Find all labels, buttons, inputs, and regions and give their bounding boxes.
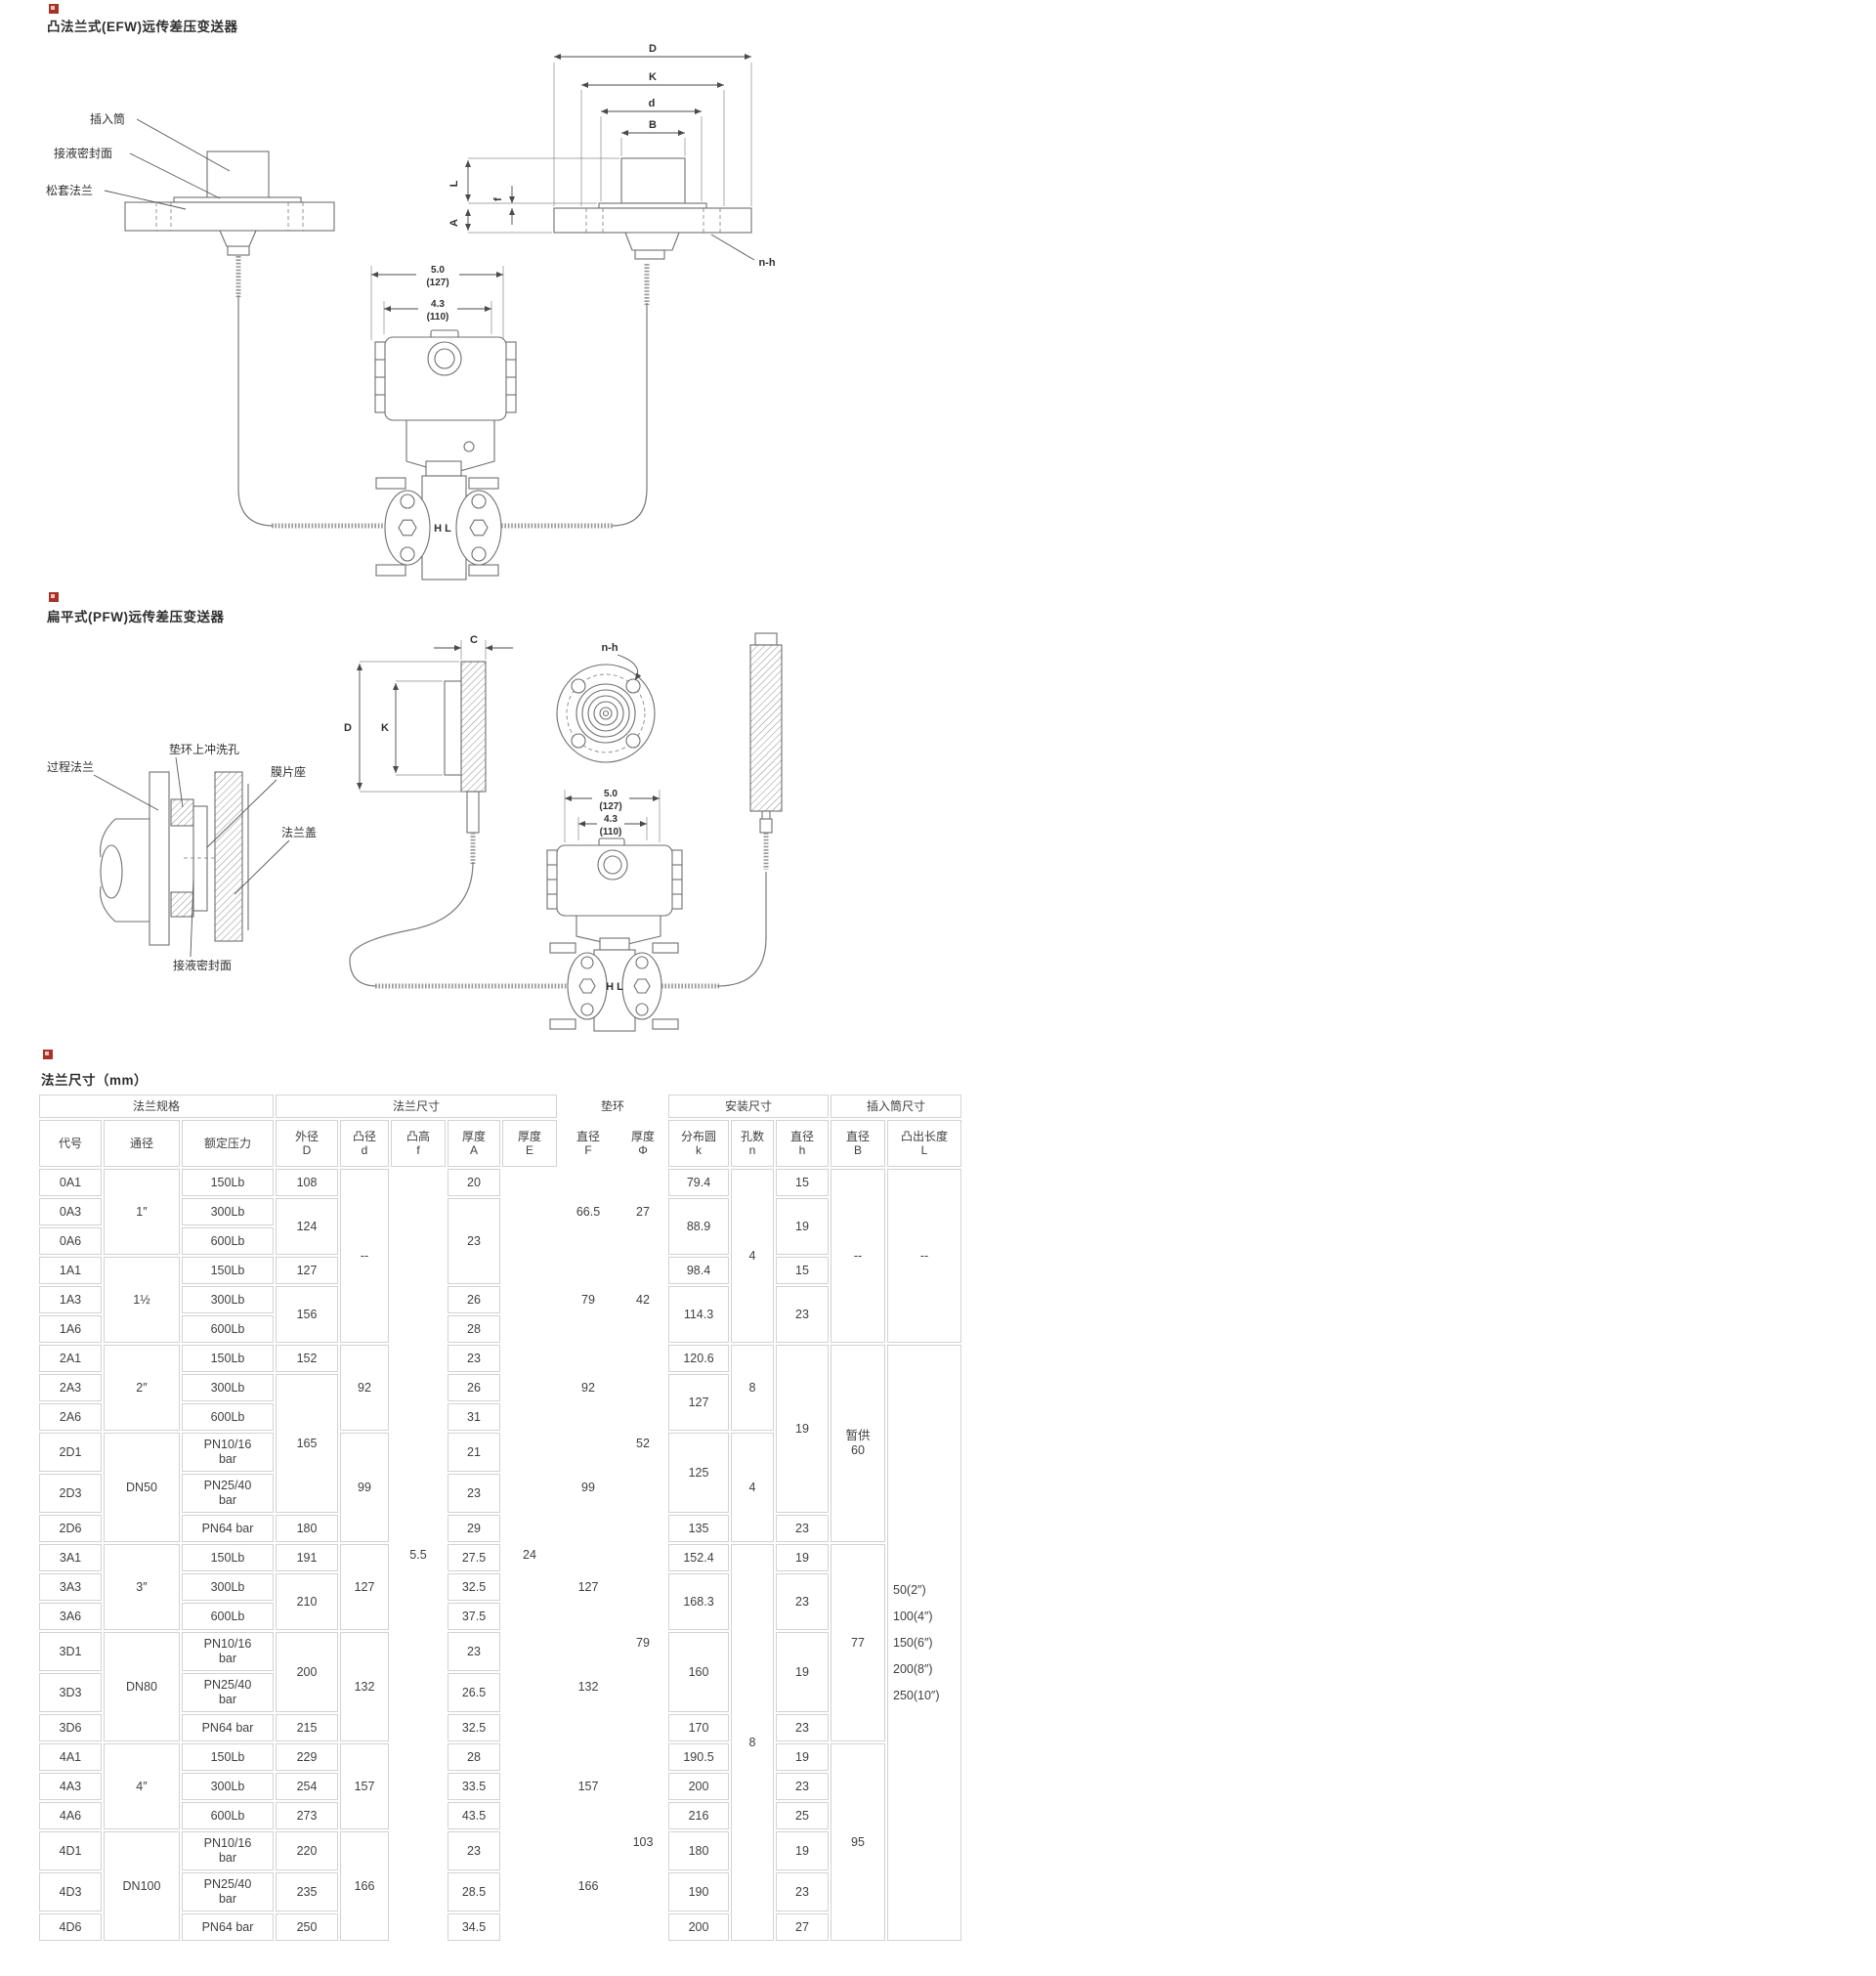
column-header: 分布圆 k (668, 1120, 729, 1167)
table-cell: 200 (668, 1913, 729, 1941)
table-cell: 23 (776, 1573, 829, 1630)
table-cell: 190.5 (668, 1743, 729, 1771)
table-cell: 124 (276, 1198, 338, 1255)
table-cell: 95 (831, 1743, 885, 1941)
table-cell: 125 (668, 1433, 729, 1513)
table-cell: 27.5 (448, 1544, 500, 1571)
column-header: 通径 (104, 1120, 180, 1167)
table-cell: 19 (776, 1198, 829, 1255)
table-cell: 34.5 (448, 1913, 500, 1941)
flange-table-body: 0A11″150Lb108--5.5202466.52779.4415----0… (39, 1169, 961, 1941)
table-cell: 4 (731, 1433, 774, 1542)
table-cell: 4D1 (39, 1831, 102, 1870)
table-cell: 33.5 (448, 1773, 500, 1800)
table-cell: 2A6 (39, 1403, 102, 1431)
table-cell: DN80 (104, 1632, 180, 1741)
table-cell: 114.3 (668, 1286, 729, 1343)
table-cell: 150Lb (182, 1257, 274, 1284)
table-cell: 43.5 (448, 1802, 500, 1829)
dim-f-label: f (492, 197, 504, 201)
table-cell: 3D1 (39, 1632, 102, 1671)
table-cell: 4 (731, 1169, 774, 1343)
table-cell: 2D1 (39, 1433, 102, 1472)
dim-C-label: C (470, 634, 478, 646)
table-cell: 50(2″) 100(4″) 150(6″) 200(8″) 250(10″) (887, 1345, 961, 1941)
table-cell: 152.4 (668, 1544, 729, 1571)
loose-flange-label: 松套法兰 (46, 184, 93, 197)
table-cell: 150Lb (182, 1544, 274, 1571)
table-cell: 77 (831, 1544, 885, 1741)
table-cell: 23 (776, 1286, 829, 1343)
table-cell: 26.5 (448, 1673, 500, 1712)
column-group-header: 插入筒尺寸 (831, 1095, 961, 1118)
table-cell: 157 (559, 1743, 618, 1829)
column-header: 凸高 f (391, 1120, 446, 1167)
table-cell: 1½ (104, 1257, 180, 1343)
table-cell: 99 (340, 1433, 389, 1542)
table-cell: 1A1 (39, 1257, 102, 1284)
column-header: 直径 F (559, 1120, 618, 1167)
table-cell: 0A6 (39, 1227, 102, 1255)
table-cell: 150Lb (182, 1345, 274, 1372)
table-cell: 8 (731, 1345, 774, 1431)
table-cell: 108 (276, 1169, 338, 1196)
flange-table-head: 法兰规格法兰尺寸垫环安装尺寸插入筒尺寸代号通径额定压力外径 D凸径 d凸高 f厚… (39, 1095, 961, 1167)
section-bullet-icon (49, 592, 59, 602)
table-cell: 170 (668, 1714, 729, 1741)
pfw-seal-section-view (101, 772, 248, 945)
table-cell: 220 (276, 1831, 338, 1870)
table-cell: 250 (276, 1913, 338, 1941)
pfw-diagram: 垫环上冲洗孔 过程法兰 膜片座 法兰盖 接液密封面 C D (27, 616, 829, 1051)
table-cell: 4D6 (39, 1913, 102, 1941)
efw-transmitter: 5.0 (127) 4.3 (110) (371, 265, 516, 580)
column-group-header: 法兰规格 (39, 1095, 274, 1118)
table-cell: 1A6 (39, 1315, 102, 1343)
table-cell: 23 (448, 1632, 500, 1671)
table-cell: 3A1 (39, 1544, 102, 1571)
table-cell: 28 (448, 1743, 500, 1771)
dim-A-label: A (448, 219, 460, 227)
table-cell: 5.5 (391, 1169, 446, 1941)
table-cell: 150Lb (182, 1743, 274, 1771)
table-cell: 2D6 (39, 1515, 102, 1542)
dim-width1: 5.0 (604, 789, 618, 799)
table-cell: 19 (776, 1831, 829, 1870)
table-cell: 229 (276, 1743, 338, 1771)
table-cell: 52 (619, 1345, 666, 1542)
pfw-flange-face-view: n-h (557, 642, 655, 762)
dim-D-label: D (344, 722, 352, 734)
table-cell: 32.5 (448, 1714, 500, 1741)
table-cell: 1A3 (39, 1286, 102, 1313)
table-cell: 160 (668, 1632, 729, 1712)
process-flange-label: 过程法兰 (47, 759, 94, 774)
column-header: 直径 h (776, 1120, 829, 1167)
table-cell: 300Lb (182, 1374, 274, 1401)
efw-left-labels: 插入筒 接液密封面 松套法兰 (46, 111, 230, 209)
flush-hole-label: 垫环上冲洗孔 (169, 742, 239, 756)
table-cell: 600Lb (182, 1403, 274, 1431)
dim-width2-mm: (110) (427, 312, 449, 322)
table-cell: 127 (340, 1544, 389, 1630)
table-cell: 19 (776, 1544, 829, 1571)
table-cell: 156 (276, 1286, 338, 1343)
table-cell: 8 (731, 1544, 774, 1941)
dim-d-label: d (649, 98, 656, 109)
table-cell: 300Lb (182, 1286, 274, 1313)
table-cell: 15 (776, 1169, 829, 1196)
table-cell: PN64 bar (182, 1913, 274, 1941)
table-cell: 120.6 (668, 1345, 729, 1372)
flange-table-title: 法兰尺寸（mm） (41, 1069, 148, 1089)
flange-cover-label: 法兰盖 (281, 826, 317, 839)
flange-dimensions-table: 法兰规格法兰尺寸垫环安装尺寸插入筒尺寸代号通径额定压力外径 D凸径 d凸高 f厚… (37, 1093, 963, 1943)
efw-hl-label: H L (434, 523, 451, 535)
table-cell: 92 (559, 1345, 618, 1431)
table-cell: 191 (276, 1544, 338, 1571)
column-header: 厚度 Φ (619, 1120, 666, 1167)
column-header: 代号 (39, 1120, 102, 1167)
insert-tube-label: 插入筒 (90, 111, 125, 126)
table-cell: 92 (340, 1345, 389, 1431)
dim-D-label: D (649, 43, 657, 55)
table-cell: 21 (448, 1433, 500, 1472)
column-header: 额定压力 (182, 1120, 274, 1167)
table-cell: 66.5 (559, 1169, 618, 1255)
table-cell: 200 (276, 1632, 338, 1712)
table-cell: 4″ (104, 1743, 180, 1829)
dim-width2-mm: (110) (600, 827, 622, 838)
wetted-seal-face-label: 接液密封面 (173, 958, 232, 972)
table-cell: 98.4 (668, 1257, 729, 1284)
table-cell: 168.3 (668, 1573, 729, 1630)
table-cell: 190 (668, 1872, 729, 1912)
table-cell: 23 (448, 1198, 500, 1284)
table-cell: 254 (276, 1773, 338, 1800)
table-cell: -- (831, 1169, 885, 1343)
table-cell: DN50 (104, 1433, 180, 1542)
table-cell: PN10/16 bar (182, 1632, 274, 1671)
table-cell: 79 (619, 1544, 666, 1741)
table-cell: 20 (448, 1169, 500, 1196)
table-cell: 166 (559, 1831, 618, 1941)
dim-L-label: L (448, 180, 460, 187)
table-cell: 135 (668, 1515, 729, 1542)
table-cell: 79 (559, 1257, 618, 1343)
table-cell: PN25/40 bar (182, 1673, 274, 1712)
column-group-header: 垫环 (559, 1095, 666, 1118)
table-cell: 132 (559, 1632, 618, 1741)
table-cell: 79.4 (668, 1169, 729, 1196)
pfw-transmitter: 5.0 (127) 4.3 (110) (547, 789, 682, 1031)
wetted-seal-face-label: 接液密封面 (54, 146, 112, 160)
table-cell: 29 (448, 1515, 500, 1542)
table-cell: 3A6 (39, 1603, 102, 1630)
table-cell: 152 (276, 1345, 338, 1372)
table-cell: 23 (776, 1773, 829, 1800)
pfw-remote-seal-plate (750, 633, 782, 819)
table-cell: 166 (340, 1831, 389, 1941)
table-cell: 23 (448, 1345, 500, 1372)
table-cell: 127 (668, 1374, 729, 1431)
table-cell: 88.9 (668, 1198, 729, 1255)
pfw-nh-label: n-h (601, 642, 618, 654)
pfw-hl-label: H L (606, 981, 623, 993)
table-cell: 103 (619, 1743, 666, 1941)
table-cell: 28 (448, 1315, 500, 1343)
column-header: 外径 D (276, 1120, 338, 1167)
table-cell: 4D3 (39, 1872, 102, 1912)
table-cell: PN25/40 bar (182, 1474, 274, 1513)
table-cell: 3D3 (39, 1673, 102, 1712)
table-cell: 165 (276, 1374, 338, 1513)
table-cell: 23 (448, 1831, 500, 1870)
table-cell: -- (887, 1169, 961, 1343)
table-cell: 19 (776, 1743, 829, 1771)
table-cell: 157 (340, 1743, 389, 1829)
table-cell: 180 (276, 1515, 338, 1542)
dim-width2: 4.3 (431, 299, 445, 310)
table-cell: 200 (668, 1773, 729, 1800)
table-cell: 127 (276, 1257, 338, 1284)
dim-width1: 5.0 (431, 265, 445, 276)
diaphragm-seat-label: 膜片座 (271, 764, 306, 779)
table-cell: 2D3 (39, 1474, 102, 1513)
table-cell: 3A3 (39, 1573, 102, 1601)
table-cell: PN64 bar (182, 1714, 274, 1741)
table-cell: 31 (448, 1403, 500, 1431)
table-cell: 3D6 (39, 1714, 102, 1741)
dim-B-label: B (649, 119, 657, 131)
table-cell: 42 (619, 1257, 666, 1343)
table-cell: 4A6 (39, 1802, 102, 1829)
column-group-header: 法兰尺寸 (276, 1095, 557, 1118)
dim-width1-mm: (127) (599, 801, 621, 812)
efw-diagram: 插入筒 接液密封面 松套法兰 D K d B (27, 29, 829, 594)
table-cell: 600Lb (182, 1315, 274, 1343)
dim-width1-mm: (127) (426, 278, 448, 288)
table-cell: 127 (559, 1544, 618, 1630)
table-cell: 19 (776, 1345, 829, 1513)
table-cell: 27 (619, 1169, 666, 1255)
efw-right-flange-view: D K d B L (448, 43, 776, 269)
table-cell: 600Lb (182, 1603, 274, 1630)
column-header: 厚度 A (448, 1120, 500, 1167)
table-cell: 2″ (104, 1345, 180, 1431)
table-cell: 180 (668, 1831, 729, 1870)
table-cell: 32.5 (448, 1573, 500, 1601)
efw-nh-label: n-h (758, 257, 775, 269)
table-cell: 15 (776, 1257, 829, 1284)
table-cell: 暂供 60 (831, 1345, 885, 1542)
table-cell: 19 (776, 1632, 829, 1712)
table-cell: 3″ (104, 1544, 180, 1630)
table-cell: 210 (276, 1573, 338, 1630)
table-cell: 0A3 (39, 1198, 102, 1225)
table-cell: 150Lb (182, 1169, 274, 1196)
table-cell: 300Lb (182, 1198, 274, 1225)
table-cell: 235 (276, 1872, 338, 1912)
table-cell: 24 (502, 1169, 557, 1941)
table-cell: PN64 bar (182, 1515, 274, 1542)
table-cell: 28.5 (448, 1872, 500, 1912)
section-bullet-icon (49, 4, 59, 14)
table-cell: PN10/16 bar (182, 1831, 274, 1870)
column-group-header: 安装尺寸 (668, 1095, 829, 1118)
column-header: 孔数 n (731, 1120, 774, 1167)
column-header: 直径 B (831, 1120, 885, 1167)
table-cell: 27 (776, 1913, 829, 1941)
table-cell: 132 (340, 1632, 389, 1741)
table-cell: 4A1 (39, 1743, 102, 1771)
table-cell: 1″ (104, 1169, 180, 1255)
pfw-side-view: C D K (344, 634, 513, 792)
datasheet-page: 凸法兰式(EFW)远传差压变送器 (0, 0, 1876, 1976)
table-cell: 25 (776, 1802, 829, 1829)
dim-K-label: K (381, 722, 389, 734)
table-cell: 216 (668, 1802, 729, 1829)
table-cell: 2A3 (39, 1374, 102, 1401)
table-cell: PN25/40 bar (182, 1872, 274, 1912)
table-cell: PN10/16 bar (182, 1433, 274, 1472)
column-header: 厚度 E (502, 1120, 557, 1167)
table-cell: 2A1 (39, 1345, 102, 1372)
table-cell: 215 (276, 1714, 338, 1741)
table-cell: 600Lb (182, 1802, 274, 1829)
pfw-left-labels: 垫环上冲洗孔 过程法兰 膜片座 法兰盖 接液密封面 (47, 742, 317, 972)
table-cell: 23 (776, 1714, 829, 1741)
column-header: 凸出长度 L (887, 1120, 961, 1167)
table-cell: -- (340, 1169, 389, 1343)
section-bullet-icon (43, 1050, 53, 1059)
table-cell: 23 (776, 1515, 829, 1542)
dim-width2: 4.3 (604, 814, 618, 825)
table-cell: 26 (448, 1286, 500, 1313)
column-header: 凸径 d (340, 1120, 389, 1167)
table-cell: 300Lb (182, 1573, 274, 1601)
table-cell: 600Lb (182, 1227, 274, 1255)
table-cell: 26 (448, 1374, 500, 1401)
table-cell: 300Lb (182, 1773, 274, 1800)
table-cell: 4A3 (39, 1773, 102, 1800)
dim-K-label: K (649, 71, 657, 83)
table-cell: 23 (448, 1474, 500, 1513)
table-cell: 273 (276, 1802, 338, 1829)
table-cell: 99 (559, 1433, 618, 1542)
table-cell: 23 (776, 1872, 829, 1912)
table-cell: 37.5 (448, 1603, 500, 1630)
table-cell: 0A1 (39, 1169, 102, 1196)
table-cell: DN100 (104, 1831, 180, 1941)
